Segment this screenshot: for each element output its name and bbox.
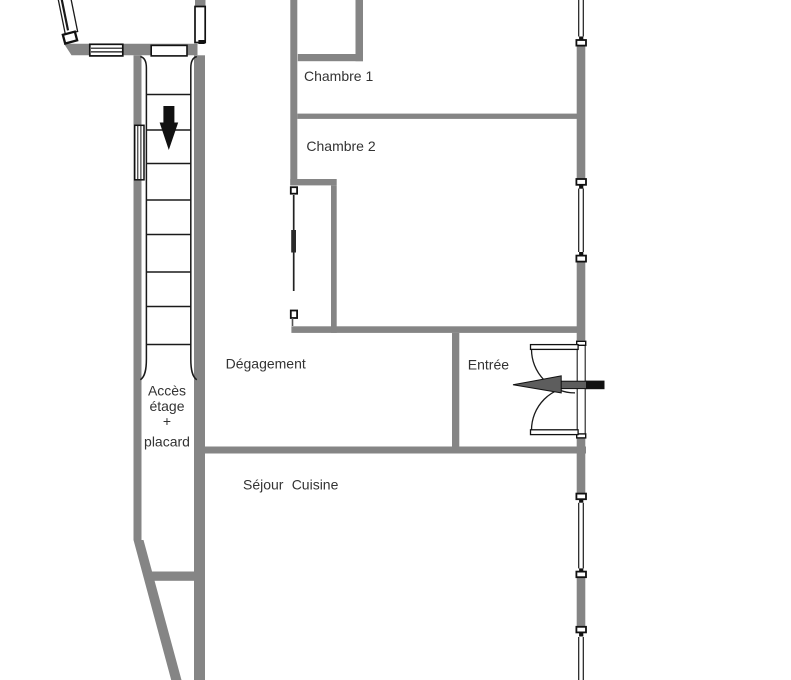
svg-text:Entrée: Entrée	[468, 357, 509, 373]
svg-text:Chambre 2: Chambre 2	[306, 138, 375, 154]
svg-text:Chambre 1: Chambre 1	[304, 68, 373, 84]
svg-text:Dégagement: Dégagement	[226, 356, 306, 372]
svg-text:Cuisine: Cuisine	[292, 477, 339, 493]
svg-text:Séjour: Séjour	[243, 477, 284, 493]
svg-text:étage: étage	[149, 398, 184, 414]
svg-text:Accès: Accès	[148, 383, 186, 399]
svg-text:placard: placard	[144, 433, 190, 449]
svg-text:+: +	[163, 413, 171, 429]
